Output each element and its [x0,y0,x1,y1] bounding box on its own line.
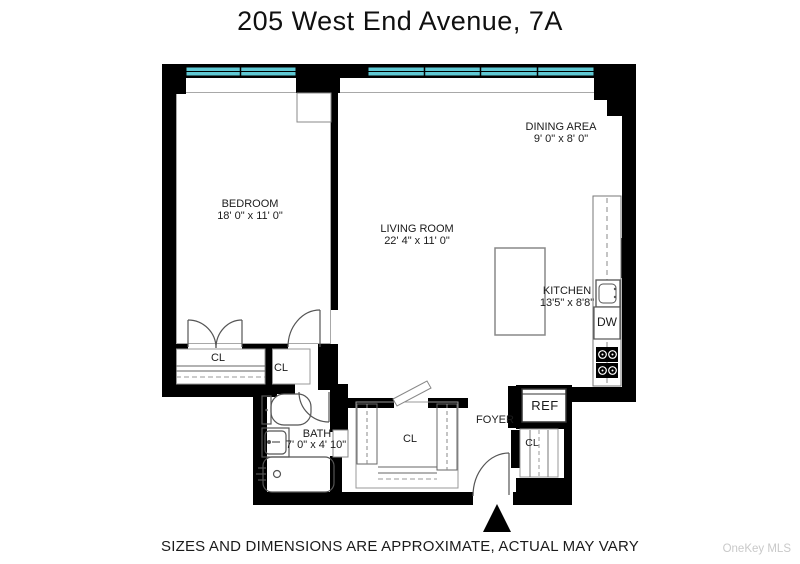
kitchen-island [495,248,545,335]
closet-label-foyer: CL [525,438,538,450]
windows [186,66,594,76]
bath-dims: 7' 0" x 4' 10" [286,439,346,451]
kitchen-dims: 13'5" x 8'8" [540,297,594,309]
living-room-label: LIVING ROOM [380,223,453,235]
wall-bedroom-living-divider [331,93,338,310]
sink-tap-dot [614,296,616,298]
closet-label-hall: CL [403,433,417,445]
toilet-tank-dot [265,409,268,412]
wall-closet-divider [265,349,272,384]
wall-bottom-left-of-door [255,492,473,505]
wall-closet-stub-left [176,344,188,349]
tub-drain [274,471,281,478]
kitchen-label: KITCHEN [543,285,591,297]
floorplan-drawing [0,0,800,564]
bedroom-dims: 18' 0" x 11' 0" [217,210,283,222]
refrigerator-label: REF [531,399,559,413]
dishwasher-label: DW [597,316,617,329]
sink-tap-dot [614,288,616,290]
wall-left [162,64,176,397]
wall-divider-foot [318,344,338,390]
floorplan-page: 205 West End Avenue, 7A [0,0,800,564]
wall-bath-right-top [330,384,348,432]
entry-door [473,453,509,496]
closet-label-bedroom: CL [211,352,225,364]
bedroom-door [288,310,320,347]
column-box [297,93,331,122]
foyer-label: FOYER [476,414,514,426]
bedroom-label: BEDROOM [222,198,279,210]
wall-corner-tl [162,64,186,94]
bath-door [299,392,329,422]
entry-arrow [483,504,511,532]
living-room-dims: 22' 4" x 11' 0" [384,235,450,247]
wall-step-tr [607,100,636,116]
wall-entry-jamb [511,430,520,468]
wall-top-column [296,64,340,93]
watermark: OneKey MLS [723,543,791,555]
wall-hallcloset-top-right [428,398,468,408]
disclaimer-text: SIZES AND DIMENSIONS ARE APPROXIMATE, AC… [0,538,800,555]
wall-closet-stub-right [242,344,288,349]
dining-area-label: DINING AREA [526,121,597,133]
sink-faucet-dot [267,440,271,444]
wall-bath-top [253,384,295,394]
wall-corner-tr [594,64,636,100]
dining-area-dims: 9' 0" x 8' 0" [534,133,588,145]
wall-kitchen-bottom [565,387,636,402]
closet-label-bedroom-2: CL [274,362,288,374]
wall-bottom-right-of-door [513,492,572,505]
wall-hallcloset-top-left [348,398,394,408]
wall-foyercloset-bottom [516,478,572,492]
